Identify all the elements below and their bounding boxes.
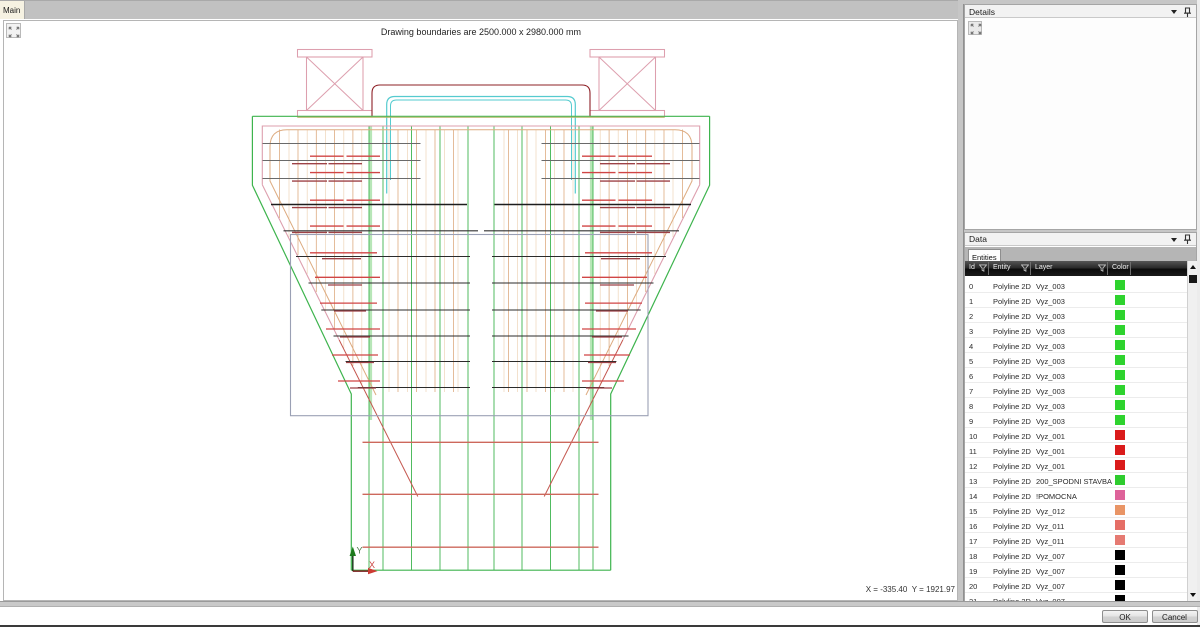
svg-text:X: X xyxy=(369,560,375,570)
svg-text:Y: Y xyxy=(357,546,363,556)
